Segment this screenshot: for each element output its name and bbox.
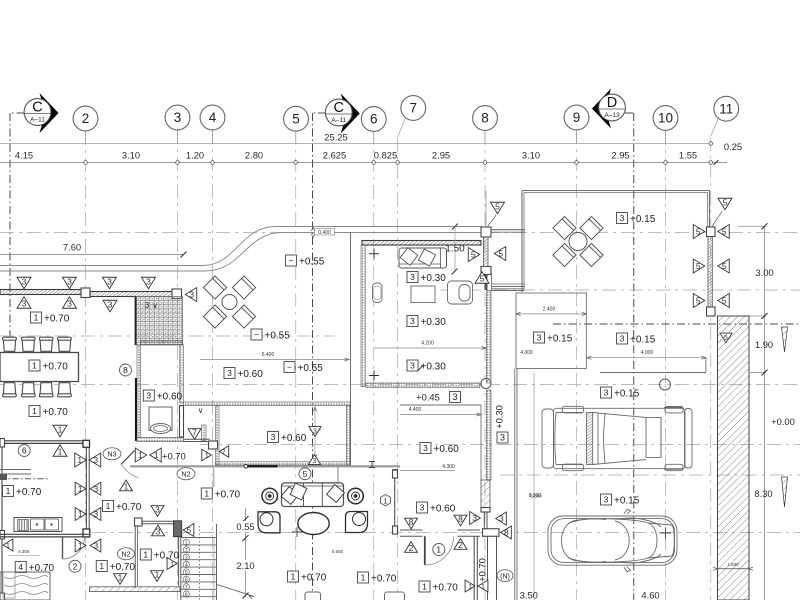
svg-text:0.55: 0.55 [236, 521, 254, 532]
svg-text:2.80: 2.80 [245, 150, 263, 161]
svg-text:1: 1 [143, 550, 148, 560]
svg-text:C: C [334, 100, 344, 116]
svg-text:3: 3 [22, 299, 27, 309]
svg-text:4.300: 4.300 [442, 464, 455, 470]
svg-text:3.00: 3.00 [755, 267, 773, 278]
svg-text:5: 5 [292, 111, 300, 126]
svg-text:3: 3 [146, 391, 151, 401]
svg-text:+0.60: +0.60 [157, 391, 183, 402]
svg-text:8.30: 8.30 [754, 488, 772, 499]
svg-text:8: 8 [409, 517, 414, 527]
svg-text:3: 3 [93, 541, 98, 551]
svg-text:A–13: A–13 [604, 112, 620, 119]
svg-text:∨: ∨ [152, 301, 158, 310]
svg-text:+0.55: +0.55 [265, 330, 291, 341]
svg-text:0.25: 0.25 [724, 141, 742, 152]
svg-text:5: 5 [722, 296, 727, 306]
svg-text:1: 1 [78, 484, 83, 494]
svg-text:1: 1 [78, 541, 83, 551]
svg-text:4.000: 4.000 [641, 350, 654, 356]
svg-text:3: 3 [156, 526, 161, 536]
svg-text:3: 3 [22, 276, 27, 286]
svg-text:3: 3 [420, 503, 425, 513]
svg-text:5.650: 5.650 [332, 549, 344, 554]
svg-text:8: 8 [481, 111, 489, 126]
svg-text:1: 1 [99, 561, 104, 571]
svg-text:2: 2 [409, 543, 414, 553]
svg-text:+0.55: +0.55 [298, 363, 324, 374]
svg-text:4.200: 4.200 [421, 341, 434, 347]
svg-text:2.95: 2.95 [611, 150, 629, 161]
svg-text:1.90: 1.90 [755, 339, 773, 350]
svg-text:3: 3 [146, 276, 151, 286]
svg-text:4.400: 4.400 [409, 407, 422, 413]
svg-text:+0.30: +0.30 [494, 405, 505, 429]
svg-text:3: 3 [410, 316, 415, 326]
svg-text:0.825: 0.825 [374, 150, 397, 161]
svg-text:+0.70: +0.70 [433, 582, 459, 593]
svg-text:8: 8 [504, 528, 509, 538]
svg-text:5: 5 [186, 525, 191, 535]
svg-text:+0.70: +0.70 [215, 489, 241, 500]
svg-text:+0.30: +0.30 [421, 361, 447, 372]
svg-text:+0.70: +0.70 [43, 407, 69, 418]
svg-text:1: 1 [34, 313, 39, 323]
svg-text:9: 9 [573, 110, 581, 125]
svg-text:3: 3 [604, 388, 609, 398]
svg-text:1: 1 [170, 562, 174, 569]
svg-text:3: 3 [410, 361, 415, 371]
svg-text:4.15: 4.15 [15, 150, 33, 161]
svg-text:−: − [289, 256, 294, 266]
svg-text:3: 3 [189, 290, 194, 300]
svg-text:11: 11 [719, 101, 733, 116]
svg-text:5: 5 [696, 227, 701, 237]
svg-text:6: 6 [22, 446, 27, 456]
svg-text:C: C [32, 100, 42, 116]
svg-text:3: 3 [500, 433, 505, 443]
svg-text:4: 4 [209, 110, 217, 125]
svg-text:8: 8 [123, 365, 128, 375]
svg-text:A–11: A–11 [30, 117, 45, 124]
svg-text:3: 3 [108, 299, 113, 309]
svg-text:1.20: 1.20 [186, 150, 204, 161]
svg-text:1: 1 [155, 570, 160, 580]
svg-text:4: 4 [18, 562, 23, 572]
svg-text:5: 5 [696, 261, 701, 271]
svg-text:5: 5 [722, 227, 727, 237]
svg-text:N2: N2 [122, 552, 131, 559]
svg-text:1: 1 [481, 584, 485, 591]
svg-text:1: 1 [78, 509, 83, 519]
svg-text:1: 1 [468, 584, 472, 591]
svg-text:1.50: 1.50 [445, 244, 465, 255]
svg-text:5: 5 [696, 296, 701, 306]
svg-text:4.000: 4.000 [520, 350, 533, 356]
svg-text:6: 6 [185, 578, 188, 584]
svg-text:2.95: 2.95 [432, 150, 450, 161]
svg-text:+0.15: +0.15 [630, 334, 656, 345]
svg-text:5: 5 [303, 469, 308, 479]
svg-text:+0.60: +0.60 [238, 369, 264, 380]
svg-text:3: 3 [174, 110, 182, 125]
svg-text:1: 1 [77, 455, 82, 465]
svg-text:3.50: 3.50 [520, 590, 538, 600]
svg-text:+0.15: +0.15 [547, 333, 573, 344]
svg-text:5.400: 5.400 [262, 352, 275, 358]
svg-text:2: 2 [185, 548, 188, 554]
svg-text:+0.15: +0.15 [614, 495, 640, 506]
svg-text:5: 5 [498, 249, 503, 259]
svg-text:3: 3 [67, 276, 72, 286]
svg-text:+0.60: +0.60 [281, 433, 307, 444]
svg-text:+0.00: +0.00 [771, 416, 795, 427]
svg-text:0.400: 0.400 [318, 230, 331, 236]
svg-text:+0.30: +0.30 [421, 273, 447, 284]
svg-text:3: 3 [620, 334, 625, 344]
svg-text:5: 5 [722, 261, 727, 271]
svg-text:7: 7 [192, 428, 197, 438]
svg-text:3: 3 [271, 432, 276, 442]
svg-text:7: 7 [222, 450, 226, 457]
svg-text:1: 1 [58, 424, 63, 434]
svg-text:D: D [607, 95, 617, 111]
svg-text:+0.30: +0.30 [421, 317, 447, 328]
svg-text:5: 5 [495, 201, 500, 211]
svg-text:4: 4 [185, 563, 188, 569]
svg-text:3: 3 [93, 509, 98, 519]
svg-text:3: 3 [313, 458, 317, 465]
svg-text:1: 1 [205, 453, 209, 460]
svg-text:+0.70: +0.70 [16, 487, 42, 498]
svg-text:3: 3 [604, 495, 609, 505]
svg-text:−: − [254, 330, 259, 340]
svg-text:2.625: 2.625 [323, 150, 346, 161]
svg-text:3: 3 [185, 555, 188, 561]
svg-text:−: − [287, 362, 292, 372]
svg-text:2: 2 [82, 111, 90, 126]
svg-text:1: 1 [118, 573, 123, 583]
svg-text:3: 3 [423, 443, 428, 453]
svg-text:3: 3 [410, 272, 415, 282]
svg-text:3: 3 [620, 213, 625, 223]
svg-text:3: 3 [452, 392, 457, 402]
svg-text:25.25: 25.25 [324, 132, 347, 143]
svg-text:5: 5 [480, 274, 485, 284]
svg-text:1: 1 [361, 573, 366, 583]
svg-text:3: 3 [93, 484, 98, 494]
svg-text:1: 1 [124, 481, 129, 491]
svg-text:N3: N3 [108, 452, 117, 459]
svg-text:1: 1 [436, 545, 441, 555]
svg-text:1: 1 [32, 406, 37, 416]
svg-text:+0.70: +0.70 [477, 558, 488, 582]
svg-text:+0.70: +0.70 [43, 361, 69, 372]
svg-text:2.400: 2.400 [543, 307, 556, 313]
svg-text:1: 1 [204, 489, 209, 499]
svg-text:1: 1 [6, 543, 10, 550]
svg-text:N2: N2 [182, 472, 191, 479]
svg-text:3: 3 [67, 299, 72, 309]
svg-text:3: 3 [93, 455, 98, 465]
svg-text:1: 1 [383, 496, 387, 505]
svg-text:1: 1 [291, 572, 296, 582]
svg-text:3: 3 [537, 333, 542, 343]
svg-text:+0.60: +0.60 [430, 503, 456, 514]
svg-text:5: 5 [471, 250, 476, 260]
svg-text:1: 1 [185, 541, 188, 547]
svg-text:1: 1 [106, 501, 111, 511]
svg-text:10: 10 [658, 111, 673, 126]
svg-text:5: 5 [185, 570, 188, 576]
svg-text:8.300: 8.300 [530, 494, 542, 499]
svg-text:+0.15: +0.15 [630, 214, 656, 225]
svg-text:3: 3 [155, 505, 160, 515]
svg-text:8: 8 [458, 514, 463, 524]
svg-text:2: 2 [458, 540, 463, 550]
svg-text:1: 1 [154, 450, 159, 460]
svg-text:∨: ∨ [198, 406, 204, 415]
svg-text:3.10: 3.10 [522, 150, 540, 161]
svg-text:2: 2 [73, 561, 78, 571]
svg-text:1: 1 [422, 582, 427, 592]
svg-text:+0.70: +0.70 [116, 502, 142, 513]
svg-text:3: 3 [107, 276, 112, 286]
svg-text:+0.70: +0.70 [301, 572, 327, 583]
svg-text:(N): (N) [500, 574, 510, 581]
svg-text:+0.70: +0.70 [162, 451, 186, 462]
svg-text:3: 3 [472, 513, 477, 523]
svg-text:7: 7 [185, 585, 188, 591]
svg-text:1: 1 [6, 486, 11, 496]
svg-text:3: 3 [227, 368, 232, 378]
svg-text:1: 1 [58, 447, 63, 457]
svg-text:3.10: 3.10 [122, 150, 140, 161]
svg-text:3: 3 [499, 514, 504, 524]
svg-text:1: 1 [32, 361, 37, 371]
svg-text:6: 6 [370, 112, 378, 127]
svg-text:+0.70: +0.70 [371, 573, 397, 584]
svg-text:+0.15: +0.15 [614, 388, 640, 399]
svg-text:4.300: 4.300 [18, 549, 30, 554]
svg-text:2.10: 2.10 [236, 560, 254, 571]
svg-text:3: 3 [313, 429, 317, 436]
svg-text:8: 8 [185, 592, 188, 598]
svg-text:1.55: 1.55 [679, 150, 697, 161]
svg-text:5: 5 [723, 197, 728, 207]
svg-text:7: 7 [409, 101, 417, 116]
svg-text:4.60: 4.60 [641, 590, 659, 600]
svg-text:1: 1 [138, 450, 143, 460]
svg-text:+0.55: +0.55 [299, 256, 325, 267]
svg-text:+0.45: +0.45 [416, 392, 440, 403]
svg-text:7.60: 7.60 [63, 242, 81, 253]
svg-text:+0.70: +0.70 [44, 313, 70, 324]
svg-text:1.600: 1.600 [727, 562, 739, 567]
svg-text:+0.70: +0.70 [110, 562, 136, 573]
svg-text:3: 3 [145, 301, 150, 310]
svg-text:+0.60: +0.60 [434, 444, 460, 455]
svg-text:A–11: A–11 [331, 117, 346, 124]
